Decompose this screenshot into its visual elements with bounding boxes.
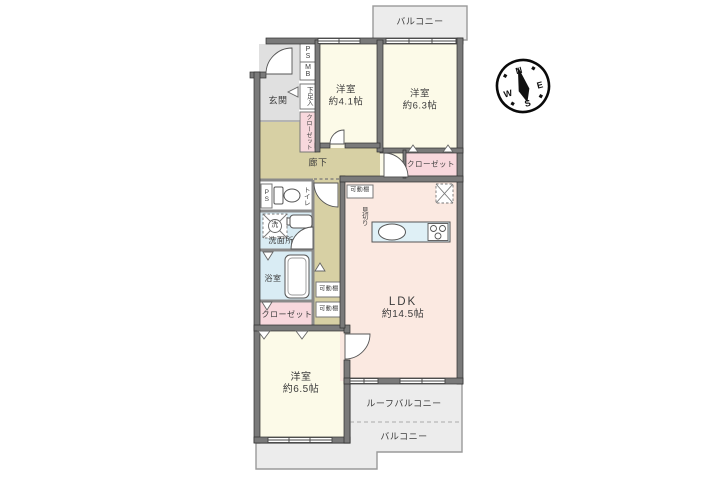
western-room-2-name: 洋室 [403, 88, 438, 100]
western-room-2-label: 洋室 約6.3帖 [403, 88, 438, 111]
balcony-bottom-label: バルコニー [380, 432, 427, 443]
western-room-1-name: 洋室 [329, 84, 364, 96]
kitchen-counter-icon [372, 222, 450, 242]
floor-plan-drawing: N E S W [0, 0, 720, 480]
western-room-2-size: 約6.3帖 [403, 100, 438, 112]
ldk-name: LDK [382, 295, 424, 309]
window-ldk-bottom-right [400, 379, 445, 384]
washer-label: 洗 [271, 222, 279, 231]
kitchen-sink-icon [379, 224, 406, 240]
hallway-label: 廊下 [308, 158, 327, 169]
window-room2-top [386, 39, 456, 44]
shelf-ldk-label: 可動棚 [350, 187, 370, 194]
bathtub-icon [285, 255, 309, 298]
roof-balcony-label: ルーフバルコニー [366, 399, 441, 410]
balcony-top-label: バルコニー [396, 17, 443, 28]
washroom-label: 洗面所 [268, 236, 294, 246]
western-room-3-size: 約6.5帖 [283, 384, 319, 396]
western-room-3-name: 洋室 [283, 372, 319, 384]
shelf-2-label: 可動棚 [319, 306, 339, 313]
ps2-label: PS [263, 189, 270, 203]
floor-plan: N E S W バルコニー 玄関 PS MB 下足入 クローゼット 洋室 約4.… [0, 0, 720, 480]
ldk-size: 約14.5帖 [382, 309, 424, 321]
closet-1-label: クローゼット [305, 114, 311, 150]
refrigerator-space-icon [436, 184, 453, 203]
western-room-3-label: 洋室 約6.5帖 [283, 372, 319, 396]
shoe-box-label: 下足入 [305, 86, 312, 106]
closet-2-label: クローゼット [407, 159, 455, 168]
bathroom-label: 浴室 [265, 274, 282, 284]
closet-3-label: クローゼット [262, 310, 313, 320]
toilet-label: トイレ [302, 186, 309, 206]
shelf-1-label: 可動棚 [319, 286, 339, 293]
window-room3-bottom [268, 438, 332, 443]
window-ldk-bottom-left [350, 379, 378, 384]
mb-label: MB [305, 64, 312, 78]
compass-icon: N E S W [491, 54, 555, 118]
mikiri-label: 見切り [360, 206, 367, 226]
stove-icon [428, 224, 448, 241]
ldk-label: LDK 約14.5帖 [382, 295, 424, 321]
vanity-sink-icon [287, 215, 312, 228]
window-room1-top [318, 39, 360, 44]
ps1-label: PS [305, 46, 312, 60]
western-room-1-label: 洋室 約4.1帖 [329, 84, 364, 107]
genkan-label: 玄関 [268, 96, 287, 107]
western-room-1-size: 約4.1帖 [329, 96, 364, 108]
